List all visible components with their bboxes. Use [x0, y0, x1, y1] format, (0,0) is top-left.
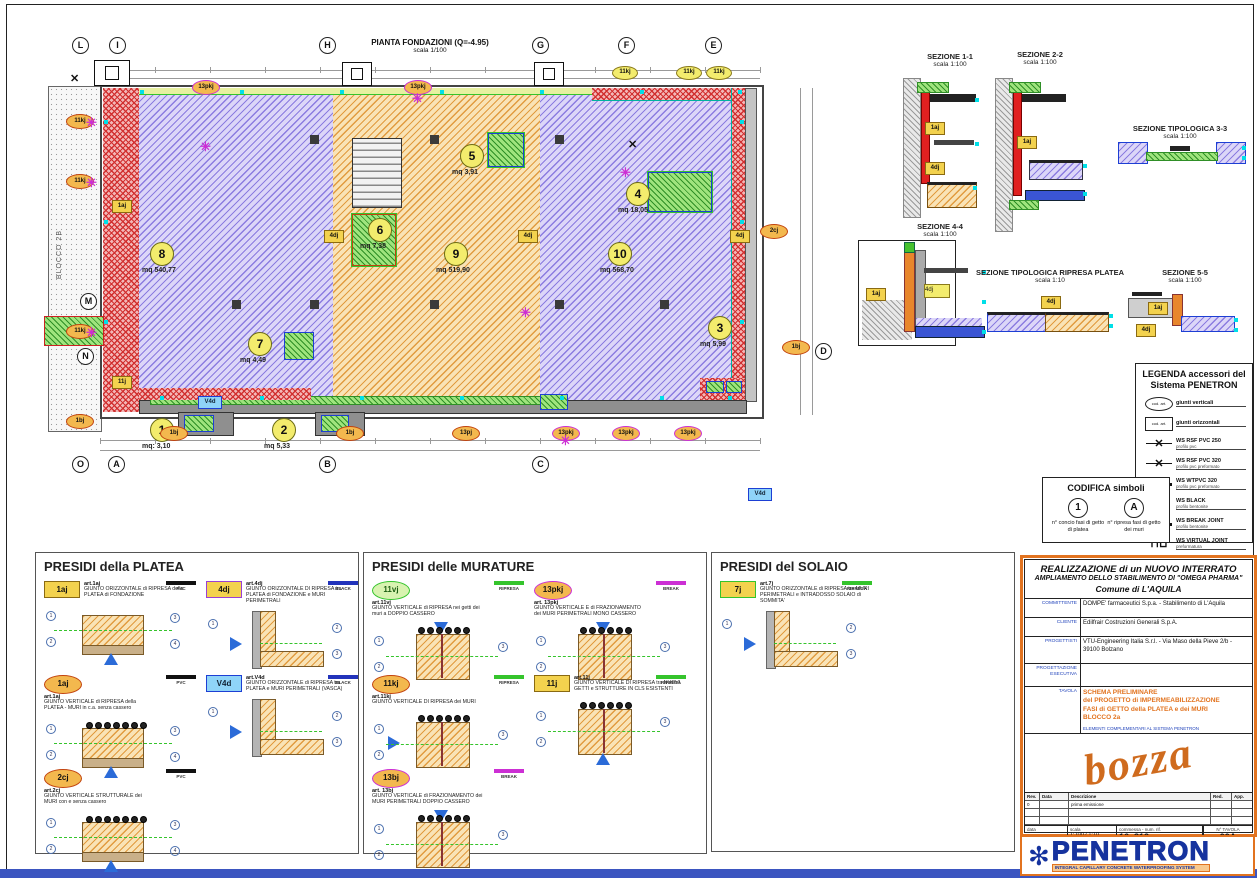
- item-tag-label: RIPRESA: [494, 680, 524, 685]
- callout-circle: 3: [660, 642, 670, 652]
- schem-slab: [260, 739, 324, 755]
- project-title-3: Comune di L'AQUILA: [1025, 584, 1252, 594]
- legend-text-2: WS RSF PVC 250profilo pvc: [1176, 438, 1246, 450]
- rev-c-desc: prima emissione: [1069, 801, 1211, 808]
- legend-sub: profilo pvc preformato: [1176, 484, 1246, 489]
- waterstop-node: [104, 120, 108, 124]
- schem-rebar: [580, 627, 632, 634]
- plan-symbol-V4d: V4d: [748, 488, 772, 501]
- section-1-1-title: SEZIONE 1-1 scala 1:100: [905, 52, 995, 68]
- joint-star-icon: ✳: [520, 306, 531, 319]
- grid-marker-E: E: [705, 37, 722, 54]
- callout-circle: 4: [170, 639, 180, 649]
- waterstop-node: [740, 120, 744, 124]
- callout-circle: 1: [46, 611, 56, 621]
- item-text: art.11vjGIUNTO VERTICALE di RIPRESA nei …: [372, 600, 484, 618]
- block-label: BLOCCO 2B: [56, 230, 63, 279]
- callout-circle: 3: [332, 737, 342, 747]
- zone-badge-9: 9: [444, 242, 468, 266]
- item-badge-11vj: 11vj: [372, 581, 410, 600]
- presidi-panel-2: PRESIDI del SOLAIO7jRIPRESAart.7jGIUNTO …: [711, 552, 1015, 852]
- pit-zone5: [488, 133, 524, 167]
- schem-greenline: [54, 837, 172, 838]
- callout-circle: 1: [208, 707, 218, 717]
- joint-star-icon: ✳: [86, 326, 97, 339]
- callout-circle: 1: [208, 619, 218, 629]
- schem-arrow-icon: [744, 637, 756, 651]
- callout-circle: 2: [332, 711, 342, 721]
- grid-marker-A: A: [108, 456, 125, 473]
- dim-tick: [430, 438, 431, 444]
- legend-item-1: cod. art.giunti orizzontali: [1142, 416, 1246, 432]
- presidi-item-13pkj: 13pkjBREAKart. 13pkjGIUNTO VERTICALE E d…: [534, 581, 686, 686]
- schem-slab: [82, 615, 144, 647]
- section-4-4-title: SEZIONE 4-4 scala 1:100: [895, 222, 985, 238]
- zone-area-label-2: mq 5,33: [264, 443, 290, 450]
- waterstop-node: [728, 396, 732, 400]
- titleblock-row-label: PROGETTAZIONE ESECUTIVA: [1025, 664, 1081, 686]
- dim-tick: [485, 438, 486, 444]
- item-tag-label: RIPRESA: [656, 680, 686, 685]
- column-marker: [310, 300, 319, 309]
- schem-rebar: [86, 722, 147, 729]
- grid-marker-B: B: [319, 456, 336, 473]
- dim-line-right: [800, 88, 801, 415]
- grid-marker-I: I: [109, 37, 126, 54]
- zone-badge-10: 10: [608, 242, 632, 266]
- grid-marker-D: D: [815, 343, 832, 360]
- legend-sub: profilo bentonite: [1176, 504, 1246, 509]
- schem-greenline: [54, 743, 172, 744]
- section-title-text: SEZIONE TIPOLOGICA RIPRESA PLATEA: [976, 268, 1124, 277]
- pit-zone7: [284, 332, 314, 360]
- pit-1-green: [184, 415, 214, 432]
- revision-header-row: Rev. Data Descrizione Red. App.: [1025, 793, 1252, 801]
- codifica-box: CODIFICA simboli 1n° concio fasi di gett…: [1042, 477, 1170, 543]
- plan-symbol-13pkj: 13pkj: [192, 80, 220, 95]
- zone-area-label-5: mq 3,91: [452, 169, 478, 176]
- revision-row-0: 0 prima emissione: [1025, 801, 1252, 809]
- section-scale-text: scala 1:100: [905, 61, 995, 68]
- plan-symbol-11kj: 11kj: [706, 66, 732, 80]
- item-text: art. 13pkjGIUNTO VERTICALE E di FRAZIONA…: [534, 600, 646, 618]
- schem-arrow-icon: [104, 653, 118, 665]
- plan-symbol-V4d: V4d: [198, 396, 222, 409]
- section-title-text: SEZIONE 5-5: [1162, 268, 1208, 277]
- callout-circle: 1: [722, 619, 732, 629]
- dim-tick: [595, 438, 596, 444]
- item-badge-13bj: 13bj: [372, 769, 410, 788]
- legend-text-6: WS BREAK JOINTprofilo bentonite: [1176, 518, 1246, 530]
- dim-tick: [210, 67, 211, 73]
- waterstop-node: [240, 90, 244, 94]
- section-title-text: SEZIONE 1-1: [927, 52, 973, 61]
- waterstop-x-icon: ✕: [70, 74, 79, 85]
- schematic-slabrebar: 1234: [44, 810, 184, 874]
- plan-scale: scala 1/100: [330, 47, 530, 54]
- legend-title-line2: Sistema PENETRON: [1136, 380, 1252, 391]
- section-4-4-drawing: 4dj 1aj: [858, 240, 988, 348]
- item-tag-bar: [166, 581, 196, 585]
- penetron-logo-text: PENETRON: [1052, 839, 1210, 863]
- schematic-corner: 123: [720, 609, 860, 673]
- column-marker: [430, 300, 439, 309]
- zone-badge-7: 7: [248, 332, 272, 356]
- schem-arrow-icon: [104, 860, 118, 872]
- waterstop-node: [260, 396, 264, 400]
- schem-rebar: [418, 627, 470, 634]
- column-marker: [232, 300, 241, 309]
- rev-c-red: [1211, 801, 1232, 808]
- section-3-3-drawing: [1118, 142, 1246, 172]
- schem-greenline: [774, 643, 836, 644]
- dim-tick: [650, 67, 651, 73]
- callout-circle: 3: [170, 613, 180, 623]
- item-tag-label: BLACK: [328, 586, 358, 591]
- item-desc: GIUNTO VERTICALE di RIPRESA nei getti de…: [372, 606, 484, 618]
- zone-badge-4: 4: [626, 182, 650, 206]
- item-tag-bar: [494, 769, 524, 773]
- plan-symbol-4dj: 4dj: [518, 230, 538, 243]
- zone-3-green-b: [726, 381, 742, 393]
- zone-badge-5: 5: [460, 144, 484, 168]
- section-scale-text: scala 1:100: [1110, 133, 1250, 140]
- plan-symbol-11kj: 11kj: [612, 66, 638, 80]
- joint-star-icon: ✳: [560, 434, 571, 447]
- schem-greenline: [386, 744, 498, 745]
- legend-text-0: giunti verticali: [1176, 400, 1246, 407]
- column-marker: [555, 300, 564, 309]
- codifica-item-1: An° ripresa fasi di getto dei muri: [1106, 494, 1162, 533]
- item-tag: BLACK: [328, 675, 358, 685]
- legend-code-shape: cod. art.: [1145, 417, 1173, 431]
- titleblock-row-1: CLIENTEEdilfrair Costruzioni Generali S.…: [1025, 617, 1252, 636]
- rev-c-app: [1232, 801, 1252, 808]
- plan-symbol-1bj: 1bj: [782, 340, 810, 355]
- dim-tick: [485, 67, 486, 73]
- item-desc: GIUNTO VERTICALE E di FRAZIONAMENTO dei …: [534, 606, 646, 618]
- plan-symbol-13pj: 13pj: [452, 426, 480, 441]
- callout-circle: 1: [536, 636, 546, 646]
- section-3-3-title: SEZIONE TIPOLOGICA 3-3 scala 1:100: [1110, 124, 1250, 140]
- callout-circle: 2: [374, 662, 384, 672]
- item-text: art.11kjGIUNTO VERTICALE DI RIPRESA dei …: [372, 694, 484, 706]
- item-desc: GIUNTO VERTICALE STRUTTURALE dei MURI co…: [44, 794, 156, 806]
- joint-star-icon: ✳: [86, 176, 97, 189]
- schem-greenline: [548, 731, 660, 732]
- legend-text-1: giunti orizzontali: [1176, 420, 1246, 427]
- column-marker: [430, 135, 439, 144]
- section-1-1-drawing: 1aj 4dj: [903, 78, 991, 218]
- callout-circle: 3: [498, 730, 508, 740]
- grid-marker-F: F: [618, 37, 635, 54]
- presidi-panel-0: PRESIDI della PLATEA1ajPVCart.1ajGIUNTO …: [35, 552, 359, 854]
- legend-text-7: WS VIRTUAL JOINTpreformatura: [1176, 538, 1246, 550]
- schem-slab: [82, 822, 144, 854]
- dim-line-right2: [812, 88, 813, 415]
- column-marker: [660, 300, 669, 309]
- penetron-tagline: INTEGRAL CAPILLARY CONCRETE WATERPROOFIN…: [1052, 864, 1210, 872]
- waterstop-node: [440, 90, 444, 94]
- section-title-text: SEZIONE TIPOLOGICA 3-3: [1133, 124, 1227, 133]
- waterstop-node: [738, 90, 742, 94]
- waterstop-node: [460, 396, 464, 400]
- dim-line-bottom2: [100, 450, 760, 451]
- dim-tick: [320, 438, 321, 444]
- zone-badge-6: 6: [368, 218, 392, 242]
- dim-tick: [100, 438, 101, 444]
- callout-circle: 2: [536, 662, 546, 672]
- stairs: [352, 138, 402, 208]
- callout-circle: 1: [46, 818, 56, 828]
- callout-circle: 2: [46, 637, 56, 647]
- dim-tick: [320, 67, 321, 73]
- joint-star-icon: ✳: [86, 116, 97, 129]
- dim-tick: [540, 438, 541, 444]
- item-badge-1aj: 1aj: [44, 675, 82, 694]
- waterstop-node: [740, 220, 744, 224]
- schem-arrow-icon: [230, 725, 242, 739]
- joint-star-icon: ✳: [200, 140, 211, 153]
- section-marker-box: [94, 60, 130, 86]
- schematic-wall: 123: [372, 810, 512, 874]
- presidi-panel-1: PRESIDI delle MURATURE11vjRIPRESAart.11v…: [363, 552, 707, 854]
- zone-area-label-3: mq 5,99: [700, 341, 726, 348]
- titleblock-row-label: PROGETTISTI: [1025, 637, 1081, 663]
- presidi-item-4dj: 4djBLACKart.4djGIUNTO ORIZZONTALE DI RIP…: [206, 581, 358, 673]
- dim-tick: [650, 438, 651, 444]
- callout-circle: 3: [332, 649, 342, 659]
- dim-tick: [760, 438, 761, 444]
- titleblock-row-3: PROGETTAZIONE ESECUTIVA: [1025, 663, 1252, 686]
- rev-h-app: App.: [1232, 793, 1252, 800]
- item-desc: GIUNTO VERTICALE di FRAZIONAMENTO dei MU…: [372, 794, 484, 806]
- zone-10-area: [540, 94, 745, 400]
- plan-symbol-4dj: 4dj: [324, 230, 344, 243]
- legend-name: giunti verticali: [1176, 400, 1246, 406]
- schem-slab: [774, 651, 838, 667]
- presidi-item-11kj: 11kjRIPRESAart.11kjGIUNTO VERTICALE DI R…: [372, 675, 524, 774]
- watermark-area: bozza: [1025, 733, 1252, 792]
- presidi-item-13bj: 13bjBREAKart. 13bjGIUNTO VERTICALE di FR…: [372, 769, 524, 874]
- item-badge-7j: 7j: [720, 581, 756, 598]
- legend-text-4: WS WTPVC 320profilo pvc preformato: [1176, 478, 1246, 490]
- field-data-label: data: [1027, 827, 1036, 832]
- item-desc: GIUNTO VERTICALE DI RIPRESA dei MURI: [372, 700, 484, 706]
- waterstop-node: [560, 396, 564, 400]
- rev-h-data: Data: [1040, 793, 1069, 800]
- title-block-rows: COMMITTENTEDOMPE' farmaceutici S.p.a. - …: [1025, 598, 1252, 686]
- item-badge-11j: 11j: [534, 675, 570, 692]
- plan-title: PIANTA FONDAZIONI (Q=-4.95): [330, 38, 530, 47]
- section-scale-text: scala 1:100: [995, 59, 1085, 66]
- tavola-line-1: del PROGETTO di IMPERMEABILIZZAZIONE: [1083, 697, 1250, 705]
- schem-wall: [774, 611, 790, 653]
- drawing-sheet: PIANTA FONDAZIONI (Q=-4.95) scala 1/100 …: [0, 0, 1257, 878]
- dim-tick: [760, 67, 761, 73]
- titleblock-row-2: PROGETTISTIVTU-Engineering Italia S.r.l.…: [1025, 636, 1252, 663]
- schem-wall: [416, 722, 470, 768]
- project-title-2: AMPLIAMENTO DELLO STABILIMENTO DI "OMEGA…: [1025, 575, 1252, 582]
- column-marker: [555, 135, 564, 144]
- zone-area-label-4: mq 18,05: [618, 207, 648, 214]
- penetron-gear-icon: ✻: [1028, 843, 1050, 869]
- legend-title-line1: LEGENDA accessori del: [1136, 369, 1252, 380]
- schem-greenline: [54, 630, 172, 631]
- legend-title: LEGENDA accessori del Sistema PENETRON: [1136, 369, 1252, 392]
- dim-tick: [155, 67, 156, 73]
- titleblock-row-value: [1081, 664, 1252, 686]
- schem-wall: [578, 709, 632, 755]
- legend-item-3: ✕WS RSF PVC 320profilo pvc preformato: [1142, 456, 1246, 472]
- codifica-item-0: 1n° concio fasi di getto di platea: [1050, 494, 1106, 533]
- grid-marker-O: O: [72, 456, 89, 473]
- plan-symbol-11kj: 11kj: [676, 66, 702, 80]
- project-title-1: REALIZZAZIONE di un NUOVO INTERRATO: [1025, 564, 1252, 575]
- presidi-item-2cj: 2cjPVCart.2cjGIUNTO VERTICALE STRUTTURAL…: [44, 769, 196, 874]
- legend-symbol-rect: cod. art.: [1142, 417, 1176, 431]
- item-tag-bar: [494, 675, 524, 679]
- item-tag-label: BREAK: [656, 586, 686, 591]
- section-marker-box: [534, 62, 564, 86]
- grid-marker-C: C: [532, 456, 549, 473]
- callout-circle: 3: [498, 642, 508, 652]
- schem-wall: [416, 634, 470, 680]
- right-red-wall: [731, 88, 746, 400]
- schem-arrow-icon: [230, 637, 242, 651]
- item-tag-bar: [328, 675, 358, 679]
- schem-greenline: [260, 731, 322, 732]
- joint-star-icon: ✳: [412, 92, 423, 105]
- penetron-logo-box: ✻ PENETRON INTEGRAL CAPILLARY CONCRETE W…: [1020, 835, 1255, 876]
- item-tag-bar: [656, 581, 686, 585]
- titleblock-row-0: COMMITTENTEDOMPE' farmaceutici S.p.a. - …: [1025, 598, 1252, 617]
- waterstop-node: [660, 396, 664, 400]
- plan-symbol-1bj: 1bj: [160, 426, 188, 441]
- schem-rebar: [580, 702, 632, 709]
- waterstop-node: [740, 320, 744, 324]
- item-tag-bar: [656, 675, 686, 679]
- item-badge-4dj: 4dj: [206, 581, 242, 598]
- waterstop-node: [140, 90, 144, 94]
- schem-wall: [578, 634, 632, 680]
- legend-sub: profilo pvc preformato: [1176, 464, 1246, 469]
- schem-slab: [82, 728, 144, 760]
- waterstop-node: [540, 90, 544, 94]
- section-title-text: SEZIONE 4-4: [917, 222, 963, 231]
- item-tag-bar: [494, 581, 524, 585]
- item-tag: BREAK: [494, 769, 524, 779]
- presidi-item-11vj: 11vjRIPRESAart.11vjGIUNTO VERTICALE di R…: [372, 581, 524, 686]
- schematic-wallup: 123: [534, 697, 674, 761]
- dim-tick: [375, 438, 376, 444]
- item-tag-bar: [166, 675, 196, 679]
- waterstop-node: [104, 320, 108, 324]
- schem-rebar: [418, 815, 470, 822]
- legend-symbol-oval: cod. art.: [1142, 397, 1176, 411]
- callout-circle: 1: [536, 711, 546, 721]
- grid-marker-L: L: [72, 37, 89, 54]
- codifica-title: CODIFICA simboli: [1043, 483, 1169, 494]
- plan-symbol-1bj: 1bj: [336, 426, 364, 441]
- titleblock-row-label: CLIENTE: [1025, 618, 1081, 636]
- zone-area-label-10: mq 568,70: [600, 267, 634, 274]
- codifica-symbol-A: A: [1124, 498, 1144, 518]
- rev-c-data: [1040, 801, 1069, 808]
- section-scale-text: scala 1:100: [1135, 277, 1235, 284]
- item-desc: GIUNTO VERTICALE di RIPRESA della PLATEA…: [44, 700, 156, 712]
- callout-circle: 2: [46, 844, 56, 854]
- waterstop-node: [104, 220, 108, 224]
- callout-circle: 2: [846, 623, 856, 633]
- schematic-wallside: 123: [372, 710, 512, 774]
- presidi-panel-title: PRESIDI del SOLAIO: [720, 559, 1014, 574]
- schem-greenline: [386, 844, 498, 845]
- item-tag: PVC: [166, 675, 196, 685]
- titleblock-row-value: VTU-Engineering Italia S.r.l. - Via Maso…: [1081, 637, 1252, 663]
- grid-marker-N: N: [77, 348, 94, 365]
- revision-row-2: [1025, 817, 1252, 825]
- tavola-value: SCHEMA PRELIMINAREdel PROGETTO di IMPERM…: [1081, 687, 1252, 733]
- tavola-label: TAVOLA: [1025, 687, 1081, 733]
- plan-symbol-2cj: 2cj: [760, 224, 788, 239]
- item-tag: PVC: [166, 769, 196, 779]
- section-2-2-title: SEZIONE 2-2 scala 1:100: [995, 50, 1085, 66]
- presidi-panel-title: PRESIDI della PLATEA: [44, 559, 358, 574]
- dim-tick: [265, 67, 266, 73]
- dim-tick: [375, 67, 376, 73]
- tavola-lines: SCHEMA PRELIMINAREdel PROGETTO di IMPERM…: [1083, 689, 1250, 723]
- title-block-inner: REALIZZAZIONE di un NUOVO INTERRATO AMPL…: [1024, 559, 1253, 833]
- revision-table: Rev. Data Descrizione Red. App. 0 prima …: [1025, 792, 1252, 825]
- dim-tick: [595, 67, 596, 73]
- presidi-item-V4d: V4dBLACKart.V4dGIUNTO ORIZZONTALE di RIP…: [206, 675, 358, 761]
- pit-zone4: [648, 172, 712, 212]
- section-marker-box: [342, 62, 372, 86]
- section-scale-text: scala 1:10: [965, 277, 1135, 284]
- section-title-text: SEZIONE 2-2: [1017, 50, 1063, 59]
- grid-marker-H: H: [319, 37, 336, 54]
- item-tag: RIPRESA: [494, 675, 524, 685]
- legend-text-3: WS RSF PVC 320profilo pvc preformato: [1176, 458, 1246, 470]
- section-5-5-title: SEZIONE 5-5 scala 1:100: [1135, 268, 1235, 284]
- codifica-caption: n° concio fasi di getto di platea: [1050, 520, 1106, 533]
- callout-circle: 2: [46, 750, 56, 760]
- zone-badge-8: 8: [150, 242, 174, 266]
- presidi-item-1aj: 1ajPVCart.1ajGIUNTO VERTICALE di RIPRESA…: [44, 675, 196, 780]
- item-tag: BREAK: [656, 581, 686, 591]
- zone-area-label-8: mq 540,77: [142, 267, 176, 274]
- plan-symbol-1bj: 1bj: [66, 414, 94, 429]
- item-tag-label: BLACK: [328, 680, 358, 685]
- item-tag-label: PVC: [166, 680, 196, 685]
- item-tag: BLACK: [328, 581, 358, 591]
- legend-sub: preformatura: [1176, 544, 1246, 549]
- callout-circle: 3: [170, 820, 180, 830]
- penetron-logo-text-wrap: PENETRON INTEGRAL CAPILLARY CONCRETE WAT…: [1052, 839, 1210, 871]
- schem-slab: [260, 651, 324, 667]
- dim-tick: [210, 438, 211, 444]
- item-tag-bar: [166, 769, 196, 773]
- waterstop-node: [160, 396, 164, 400]
- callout-circle: 1: [374, 636, 384, 646]
- rev-h-rev: Rev.: [1025, 793, 1040, 800]
- legend-joint-glyph: ✕: [1142, 437, 1176, 451]
- legend-item-2: ✕WS RSF PVC 250profilo pvc: [1142, 436, 1246, 452]
- callout-circle: 4: [170, 752, 180, 762]
- callout-circle: 1: [46, 724, 56, 734]
- titleblock-row-value: Edilfrair Costruzioni Generali S.p.A.: [1081, 618, 1252, 636]
